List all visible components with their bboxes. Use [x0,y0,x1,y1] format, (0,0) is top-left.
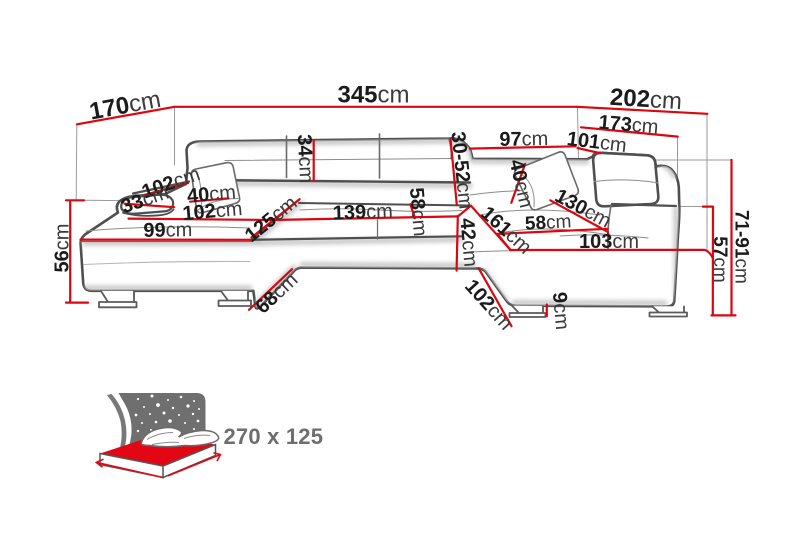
svg-text:57cm: 57cm [709,236,730,282]
svg-text:270 x 125: 270 x 125 [224,424,324,449]
svg-text:42cm: 42cm [455,217,481,268]
svg-text:103cm: 103cm [579,231,639,253]
svg-text:9cm: 9cm [548,291,573,331]
svg-text:97cm: 97cm [499,128,548,151]
svg-text:139cm: 139cm [332,200,393,224]
svg-text:58cm: 58cm [405,187,431,238]
svg-text:202cm: 202cm [609,84,683,115]
svg-text:345cm: 345cm [337,82,409,109]
svg-text:71-91cm: 71-91cm [731,210,752,284]
svg-text:34cm: 34cm [293,134,318,184]
svg-text:99cm: 99cm [143,219,192,242]
svg-text:58cm: 58cm [524,211,572,234]
svg-text:56cm: 56cm [51,224,73,273]
